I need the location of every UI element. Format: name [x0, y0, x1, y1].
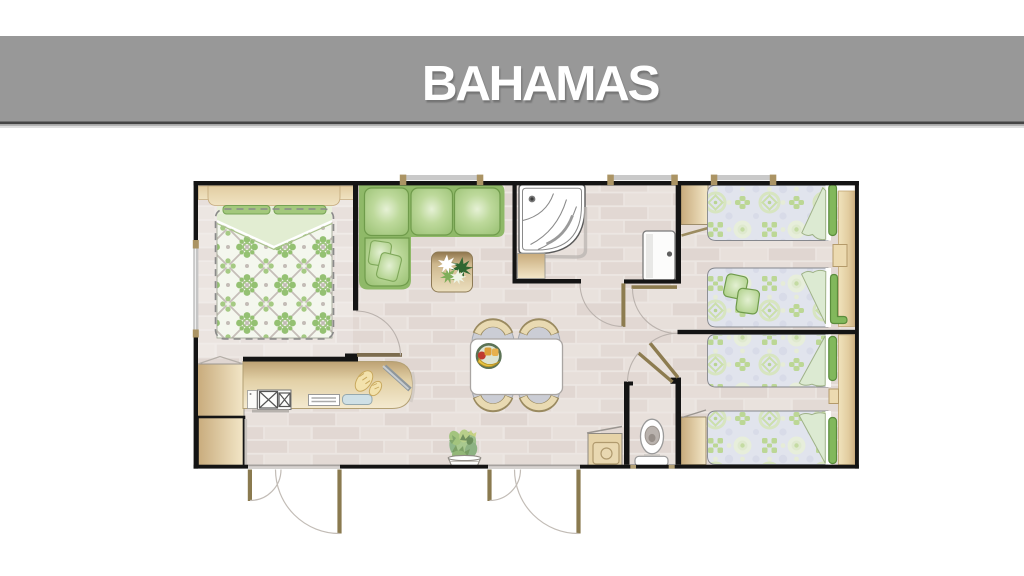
svg-text:BAHAMAS: BAHAMAS [422, 56, 660, 111]
